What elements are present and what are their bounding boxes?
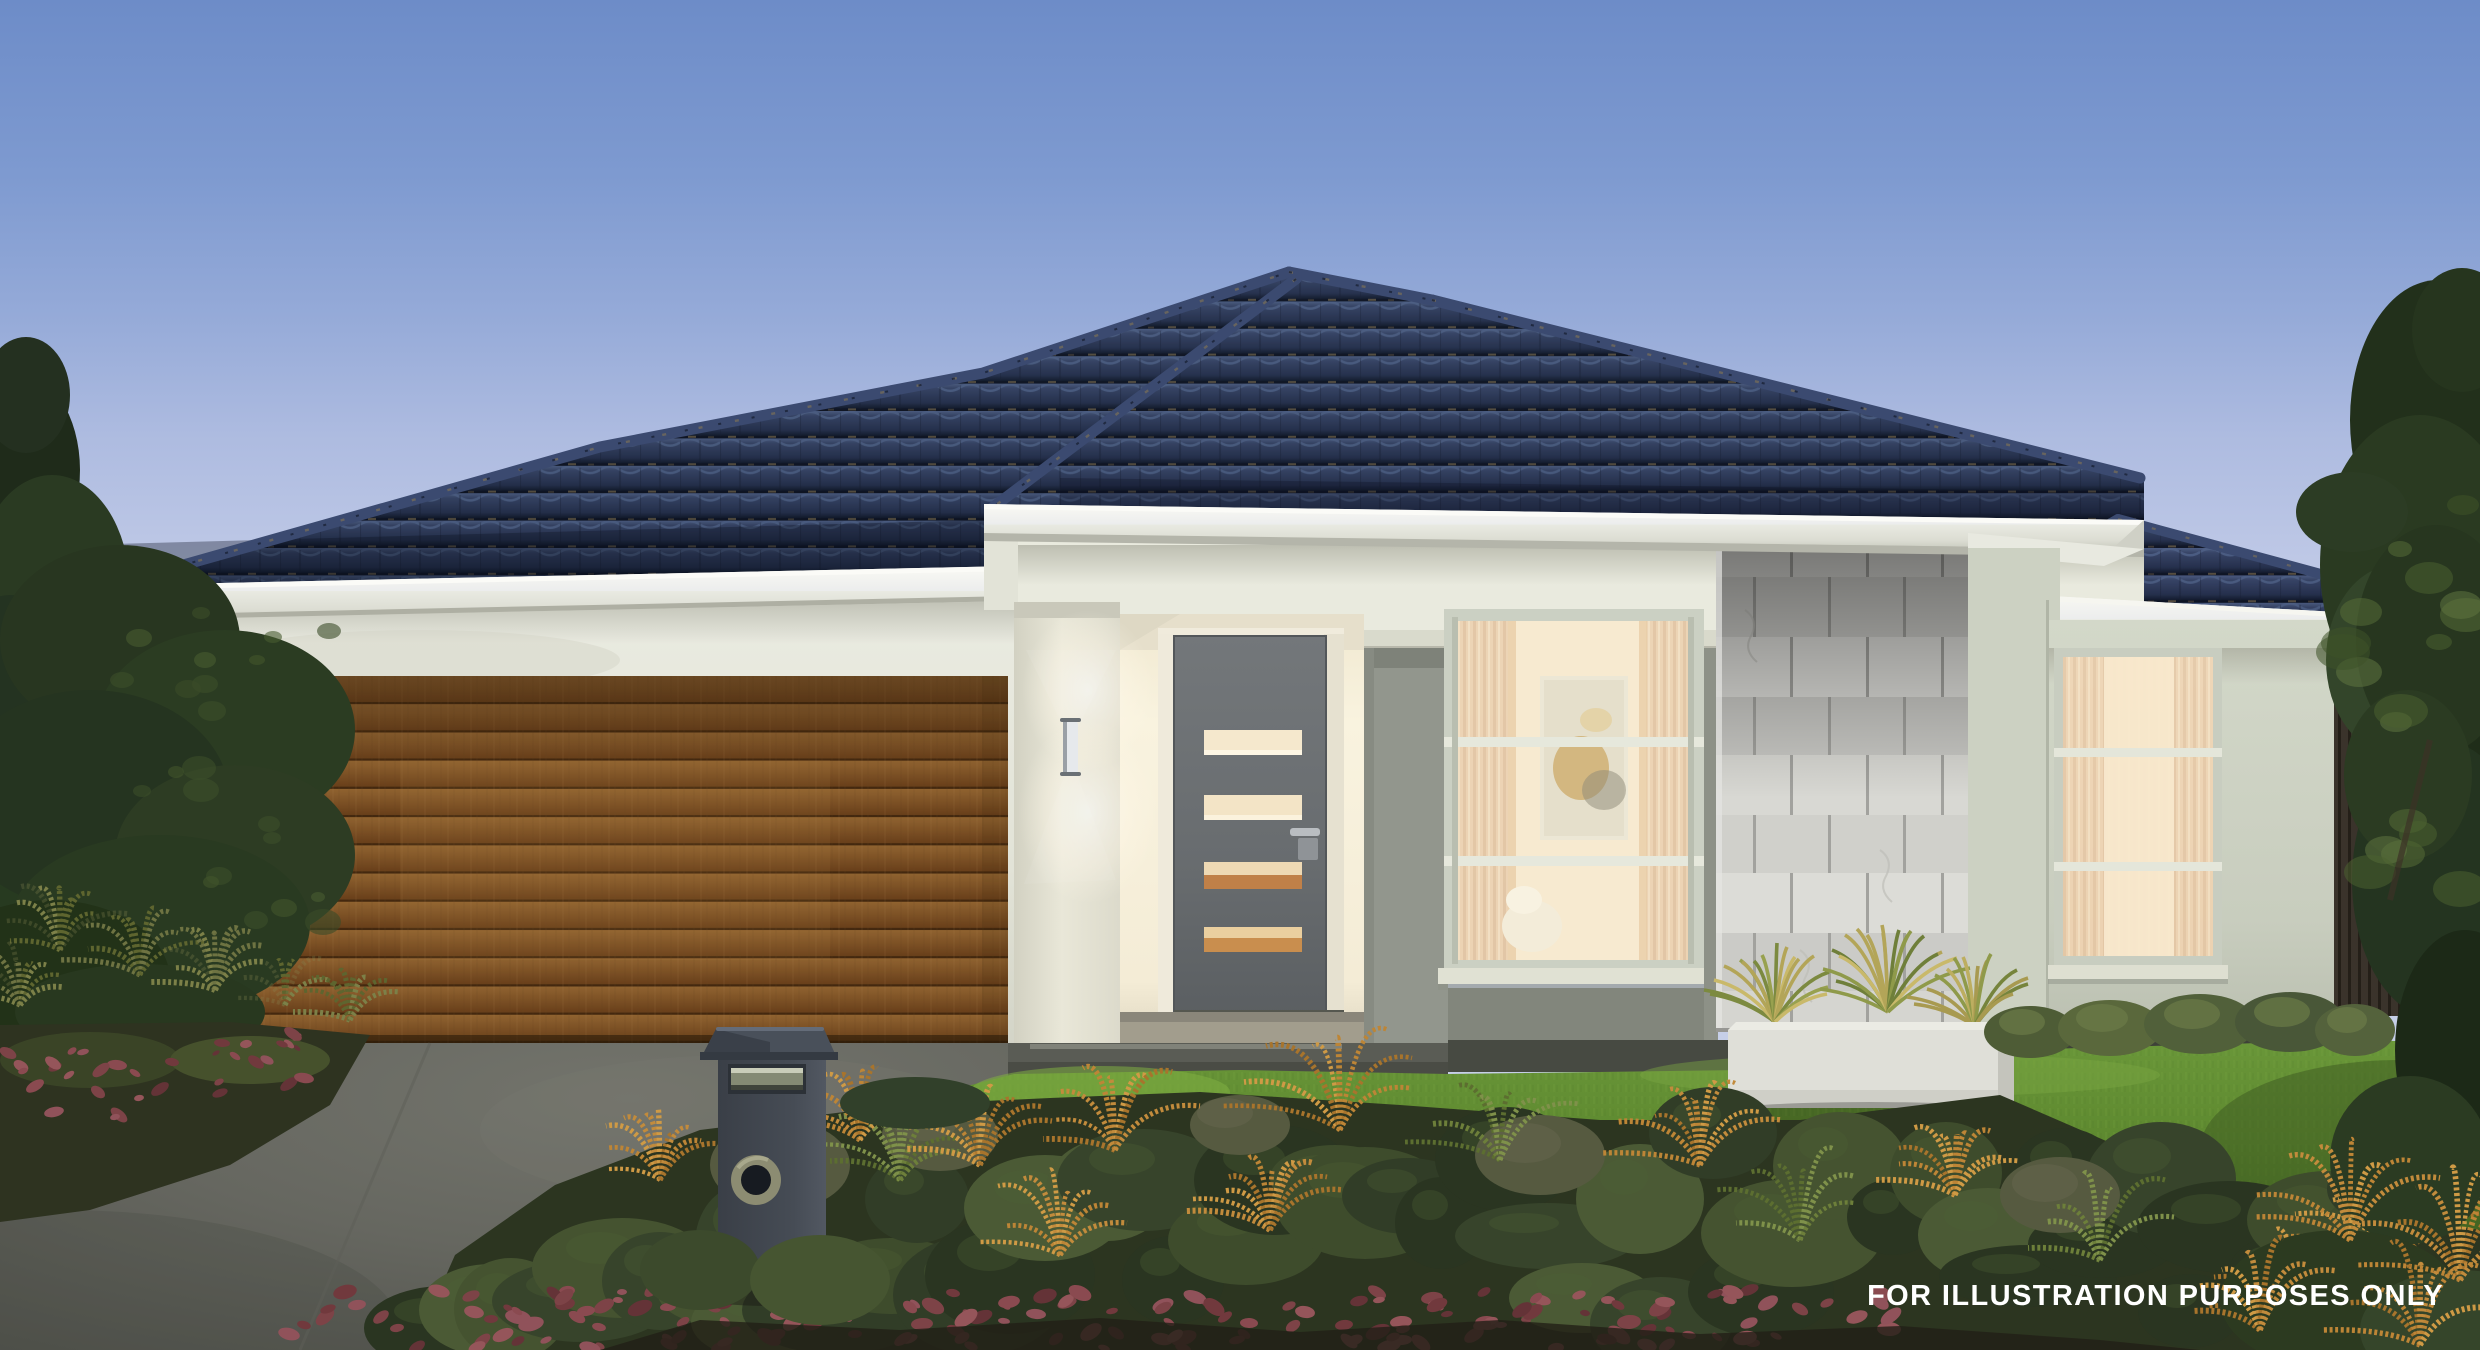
svg-text:FOR ILLUSTRATION PURPOSES ONLY: FOR ILLUSTRATION PURPOSES ONLY — [1867, 1280, 2444, 1312]
